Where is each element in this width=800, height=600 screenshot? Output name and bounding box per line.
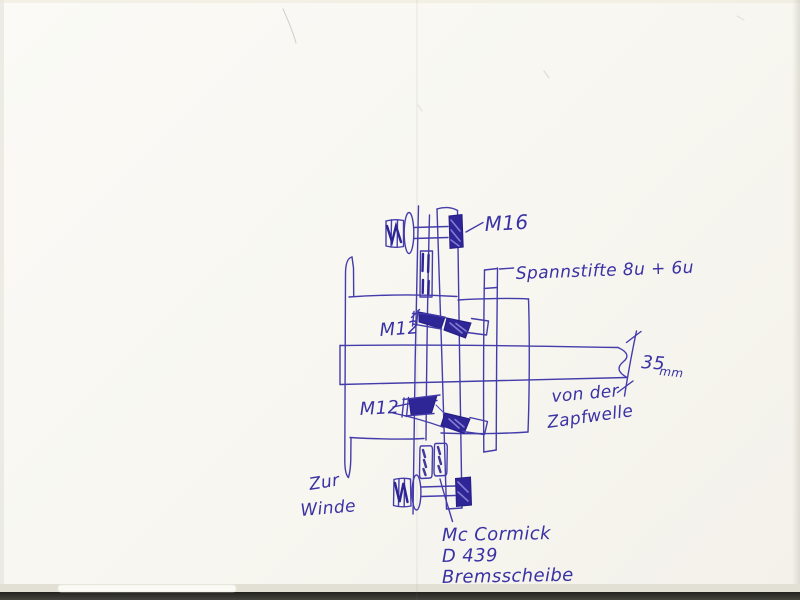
bottom-bolt [394,475,472,510]
pressure-plate [413,206,430,514]
label-bremsscheibe: Bremsscheibe [442,565,574,588]
label-m12-lower: M12 [359,397,400,420]
dowel-pin-plate [484,268,514,452]
hub-block [441,298,529,433]
label-mc-cormick: Mc Cormick [442,523,553,546]
dimension-unit: mm [659,364,685,380]
brake-pads [420,443,453,521]
label-spannstifte: Spannstifte 8u + 6u [515,258,694,284]
scanned-sketch-paper: 35 mm M16 Spannstifte 8u + 6u M12 M12 vo… [0,0,800,600]
label-d439: D 439 [442,545,498,567]
m12-bolt-upper [412,310,489,339]
dimension-35mm: 35 mm [618,331,685,396]
m12-lower-nut [441,413,470,434]
m12-upper-nut [444,318,471,338]
technical-sketch-svg: 35 mm M16 Spannstifte 8u + 6u M12 M12 vo… [0,0,800,600]
label-zur: Zur [307,470,342,495]
pins-leader-line [500,268,514,269]
label-winde: Winde [300,496,357,521]
m16-leader-line [466,223,483,233]
spring-element-top [420,251,433,297]
pencil-smudges [283,9,744,111]
label-von-der: von der [551,381,621,407]
m12-bolt-lower [393,395,488,435]
label-m16: M16 [484,210,529,236]
m16-bolt [386,213,483,254]
label-m12-upper: M12 [379,317,420,341]
